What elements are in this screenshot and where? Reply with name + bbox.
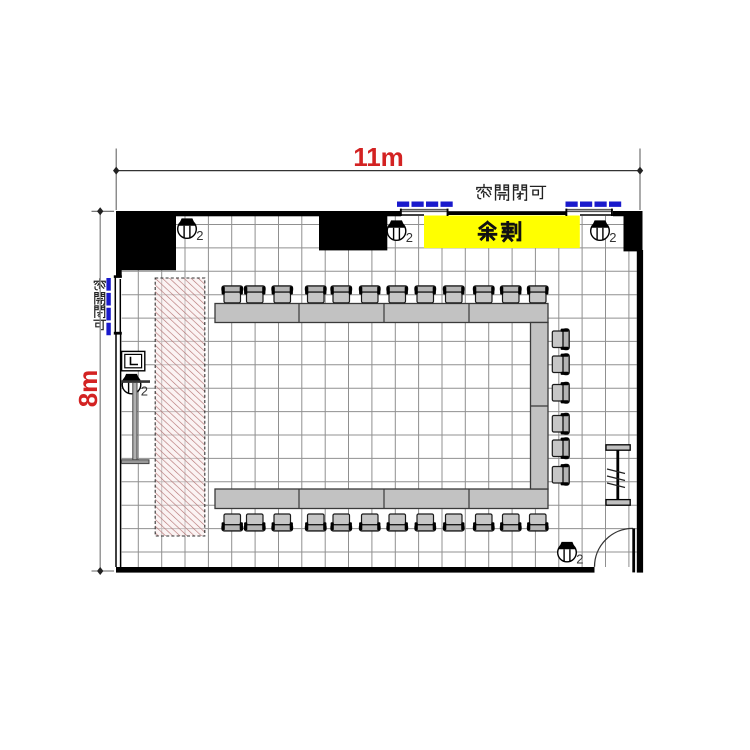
svg-text:8m: 8m (73, 370, 103, 408)
svg-text:11m: 11m (353, 142, 404, 172)
